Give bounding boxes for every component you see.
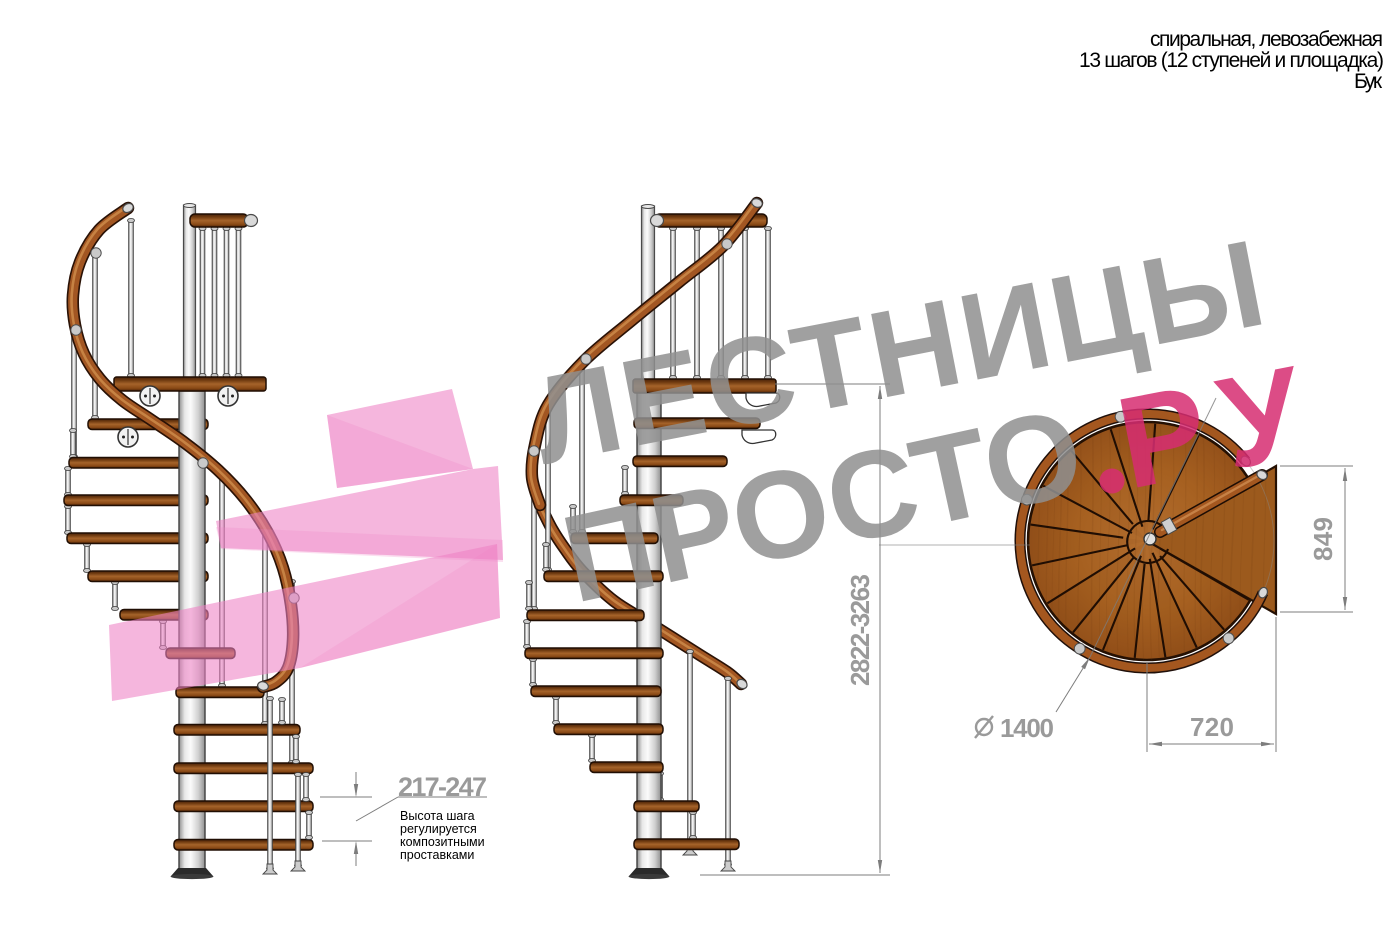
svg-text:регулируется: регулируется — [400, 822, 477, 836]
svg-text:1400: 1400 — [1000, 713, 1054, 743]
svg-text:проставками: проставками — [400, 848, 474, 862]
svg-text:13 шагов (12 ступеней и площад: 13 шагов (12 ступеней и площадка) — [1079, 49, 1384, 72]
svg-text:композитными: композитными — [400, 835, 485, 849]
svg-text:720: 720 — [1190, 712, 1234, 742]
svg-text:Бук: Бук — [1354, 70, 1383, 93]
svg-text:спиральная, левозабежная: спиральная, левозабежная — [1150, 28, 1383, 51]
svg-text:Высота шага: Высота шага — [400, 809, 475, 823]
svg-text:849: 849 — [1308, 517, 1338, 561]
svg-text:217-247: 217-247 — [398, 772, 487, 802]
svg-text:2822-3263: 2822-3263 — [845, 574, 875, 686]
